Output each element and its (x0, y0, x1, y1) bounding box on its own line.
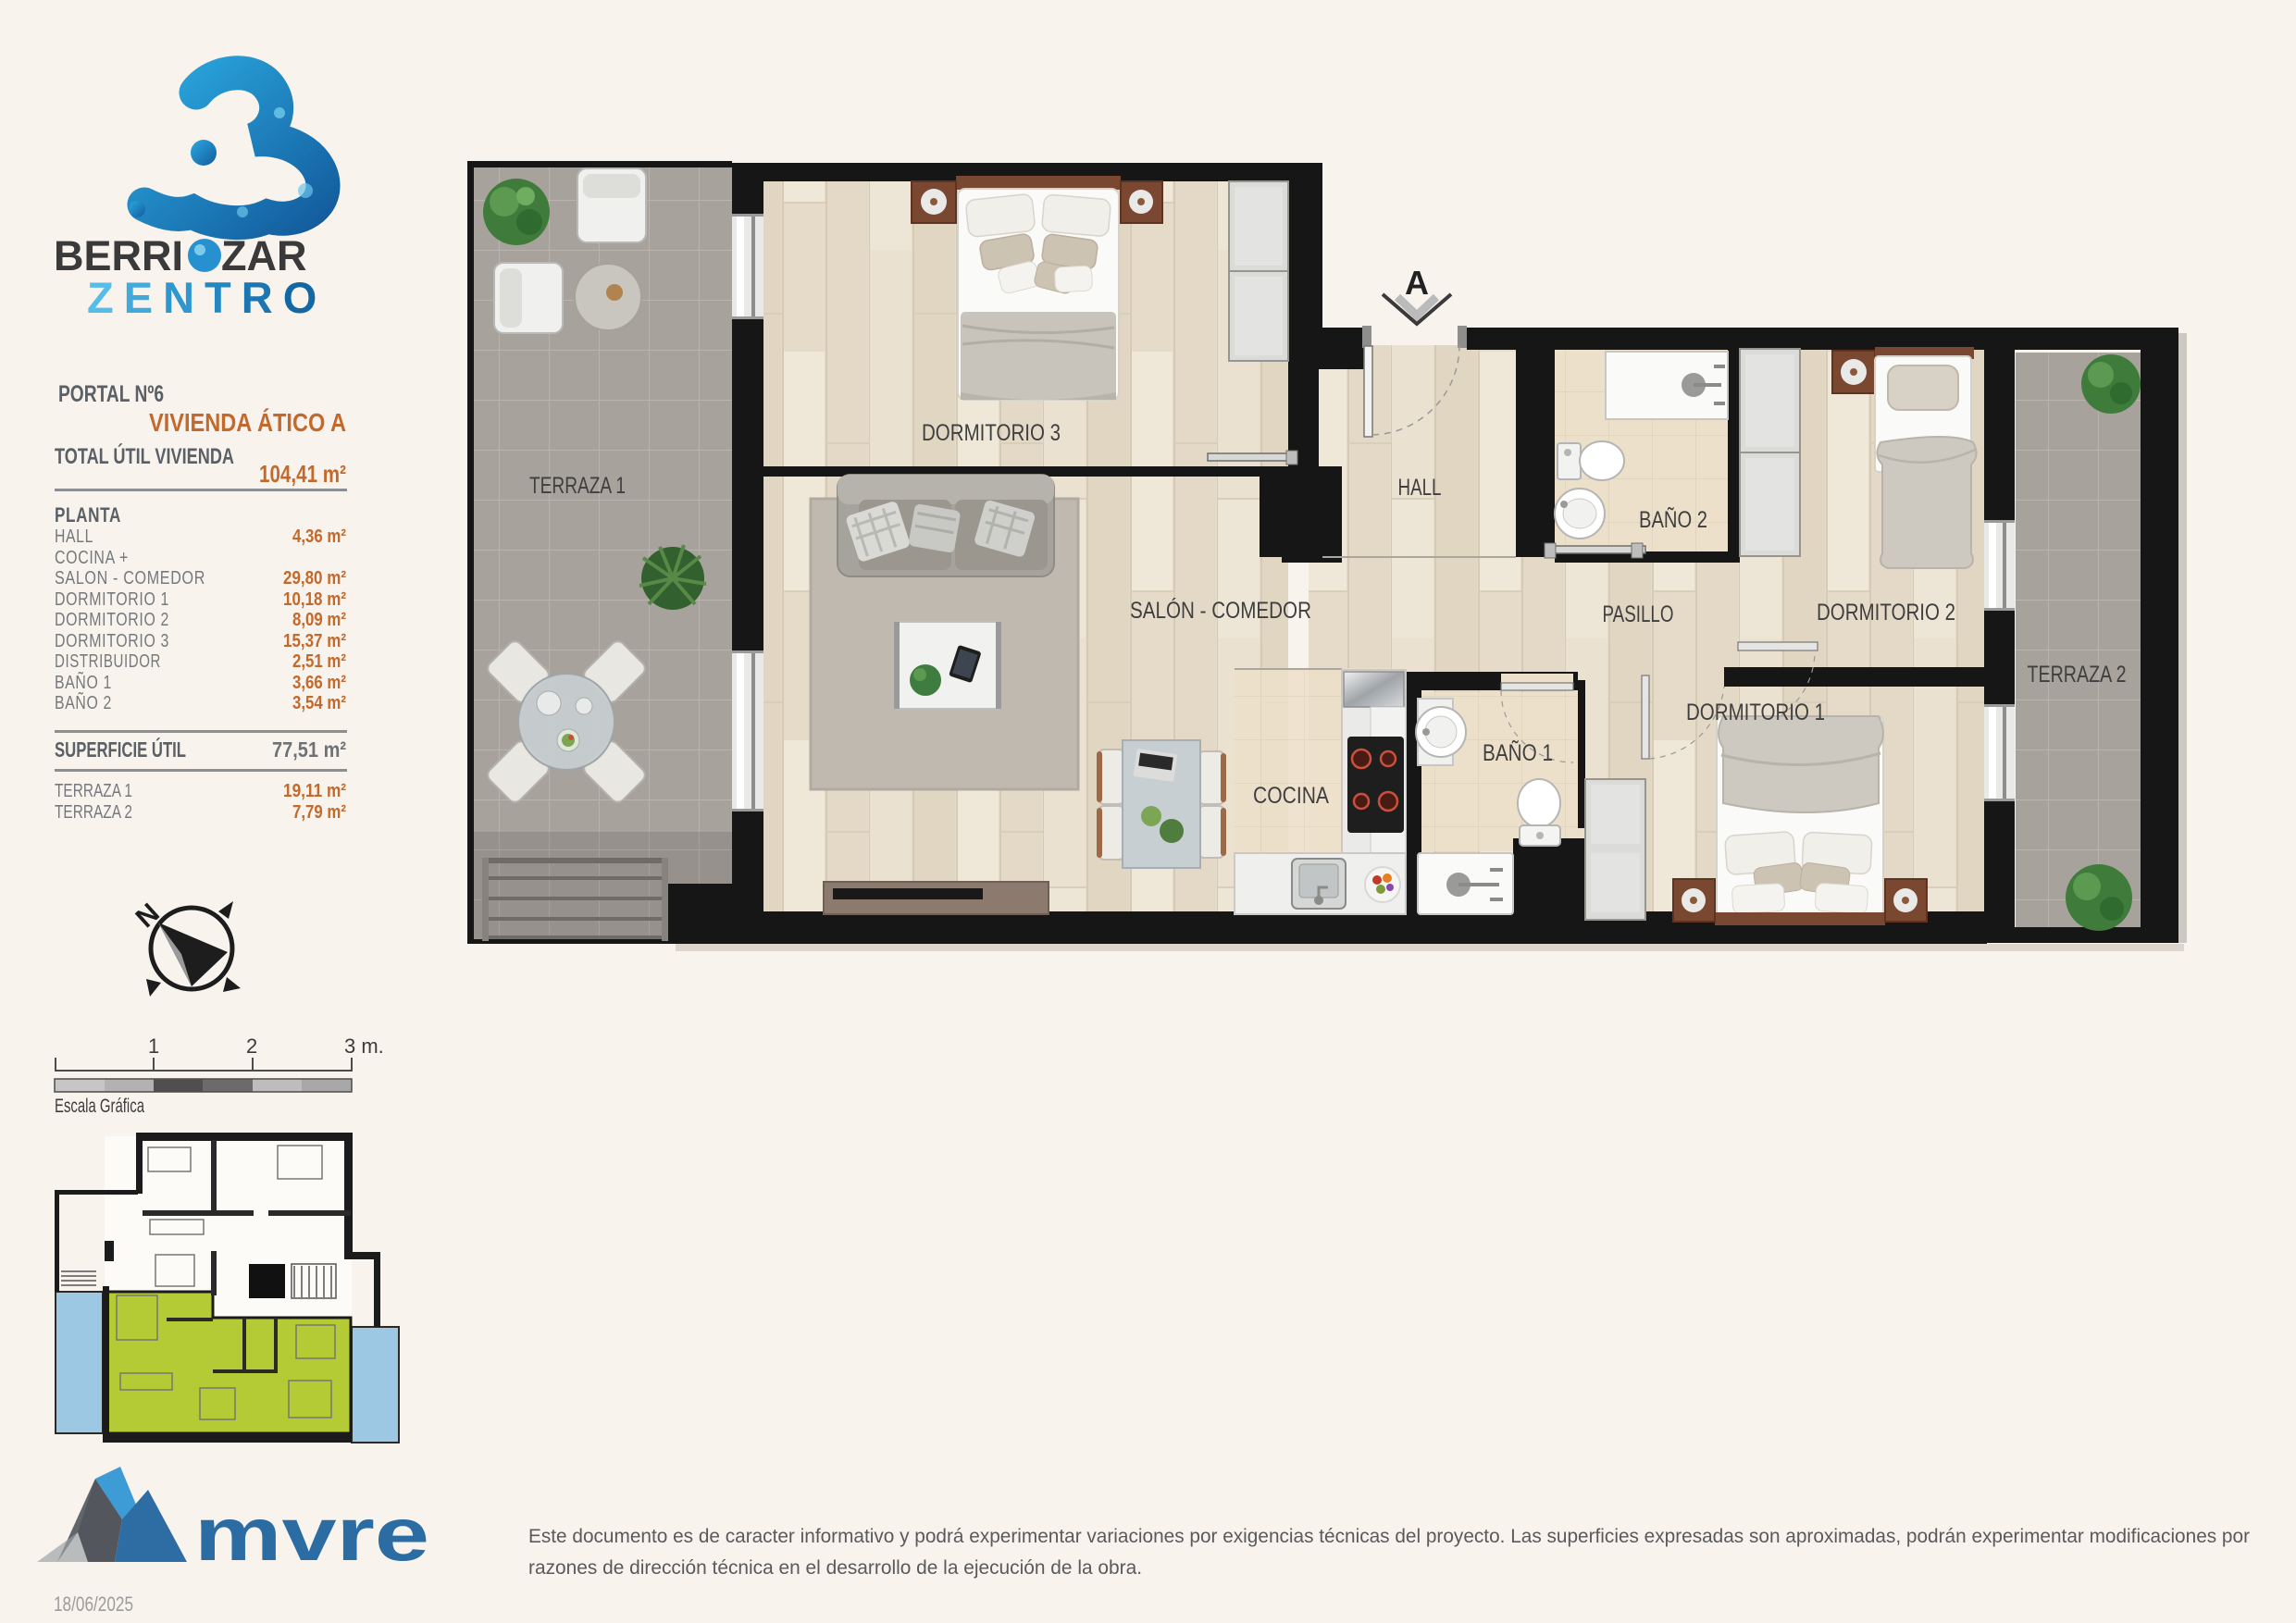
svg-text:HALL: HALL (1398, 475, 1442, 501)
svg-text:TERRAZA 1: TERRAZA 1 (55, 781, 132, 801)
svg-text:2: 2 (246, 1035, 257, 1058)
svg-text:3,54 m²: 3,54 m² (292, 693, 346, 713)
svg-text:HALL: HALL (55, 527, 93, 547)
svg-text:PORTAL Nº6: PORTAL Nº6 (58, 381, 164, 407)
svg-text:DORMITORIO 3: DORMITORIO 3 (922, 420, 1061, 446)
svg-text:DORMITORIO 2: DORMITORIO 2 (55, 610, 169, 630)
svg-text:COCINA: COCINA (1253, 783, 1329, 809)
svg-text:DORMITORIO 1: DORMITORIO 1 (55, 589, 169, 610)
svg-text:1: 1 (148, 1035, 159, 1058)
svg-text:SALON - COMEDOR: SALON - COMEDOR (55, 568, 205, 588)
svg-text:BAÑO 1: BAÑO 1 (55, 671, 112, 693)
svg-text:15,37 m²: 15,37 m² (283, 631, 346, 651)
svg-text:3 m.: 3 m. (344, 1035, 384, 1058)
svg-text:ZENTRO: ZENTRO (87, 273, 327, 322)
svg-text:DISTRIBUIDOR: DISTRIBUIDOR (55, 651, 161, 672)
svg-text:BAÑO 2: BAÑO 2 (55, 691, 112, 713)
svg-text:TERRAZA 2: TERRAZA 2 (55, 802, 132, 823)
svg-text:DORMITORIO 1: DORMITORIO 1 (1686, 700, 1825, 725)
svg-text:BAÑO 2: BAÑO 2 (1639, 506, 1707, 533)
svg-text:DORMITORIO 2: DORMITORIO 2 (1817, 600, 1955, 626)
svg-text:2,51 m²: 2,51 m² (292, 651, 346, 672)
svg-text:SALÓN - COMEDOR: SALÓN - COMEDOR (1130, 597, 1311, 624)
svg-text:COCINA +: COCINA + (55, 548, 129, 568)
svg-text:7,79 m²: 7,79 m² (292, 802, 346, 823)
svg-text:77,51 m²: 77,51 m² (272, 737, 346, 762)
svg-text:18/06/2025: 18/06/2025 (54, 1592, 133, 1616)
svg-text:TERRAZA 1: TERRAZA 1 (529, 473, 626, 499)
svg-text:PLANTA: PLANTA (55, 503, 121, 527)
svg-text:Escala Gráfica: Escala Gráfica (55, 1096, 144, 1117)
svg-text:A: A (1405, 264, 1429, 302)
svg-text:TERRAZA 2: TERRAZA 2 (2028, 662, 2127, 688)
svg-text:DORMITORIO 3: DORMITORIO 3 (55, 631, 169, 651)
svg-text:4,36 m²: 4,36 m² (292, 527, 346, 547)
svg-text:BAÑO 1: BAÑO 1 (1483, 739, 1553, 766)
svg-text:8,09 m²: 8,09 m² (292, 610, 346, 630)
svg-text:SUPERFICIE ÚTIL: SUPERFICIE ÚTIL (55, 737, 186, 762)
svg-text:29,80 m²: 29,80 m² (283, 568, 346, 588)
svg-text:3,66 m²: 3,66 m² (292, 673, 346, 693)
svg-text:razones de dirección técnica e: razones de dirección técnica en el desar… (528, 1557, 1142, 1579)
svg-text:PASILLO: PASILLO (1603, 601, 1674, 627)
svg-text:mvre: mvre (194, 1493, 429, 1577)
svg-text:19,11 m²: 19,11 m² (283, 781, 346, 801)
svg-text:104,41 m²: 104,41 m² (259, 460, 346, 488)
svg-text:VIVIENDA ÁTICO A: VIVIENDA ÁTICO A (149, 408, 346, 437)
svg-text:10,18 m²: 10,18 m² (283, 589, 346, 610)
svg-text:TOTAL ÚTIL VIVIENDA: TOTAL ÚTIL VIVIENDA (55, 443, 234, 469)
svg-text:Este documento es de caracter: Este documento es de caracter informativ… (528, 1526, 2250, 1547)
